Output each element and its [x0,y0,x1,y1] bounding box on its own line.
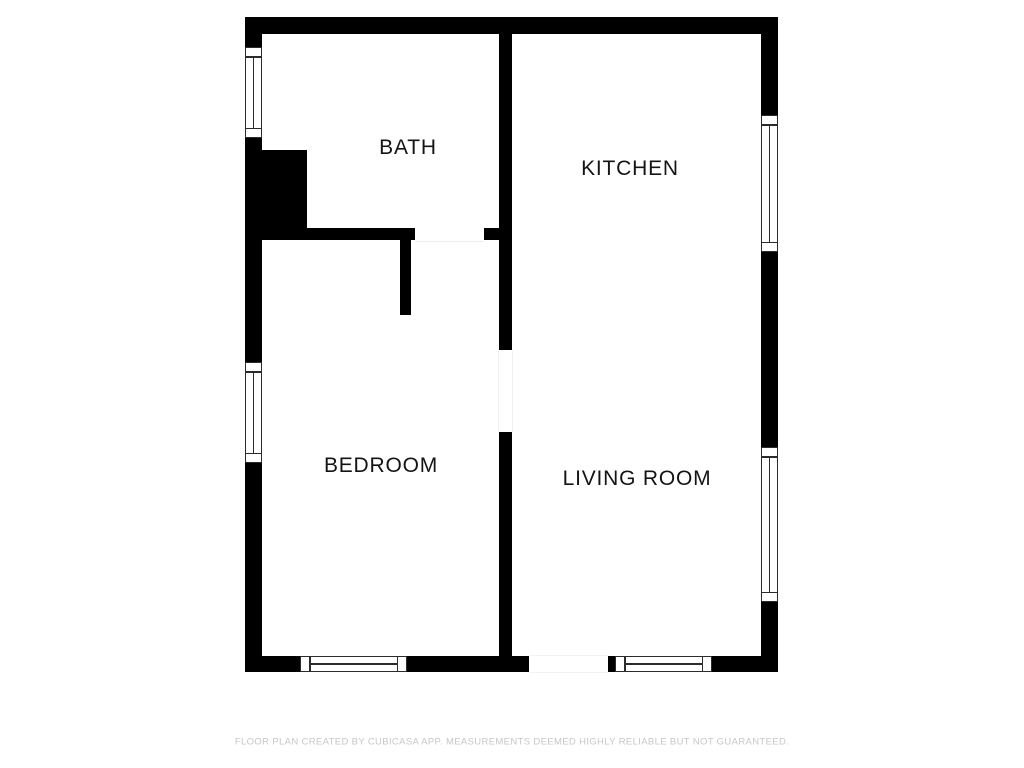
room-label-kitchen: KITCHEN [581,157,679,181]
window-bedroom-bottom [300,656,407,672]
window-living-room-bottom [615,656,712,672]
room-label-bedroom: BEDROOM [324,454,438,478]
window-kitchen-right [761,115,778,252]
window-bedroom-left [245,362,262,463]
opening-entry [529,655,608,673]
opening-hallway [498,350,513,432]
window-bath-left [245,47,262,138]
opening-bath-door [415,227,484,242]
floor-plan: BATH KITCHEN BEDROOM LIVING ROOM FLOOR P… [0,0,1024,768]
disclaimer-text: FLOOR PLAN CREATED BY CUBICASA APP. MEAS… [235,737,789,748]
room-label-bath: BATH [379,136,437,160]
wall-interior-vertical [499,30,512,656]
room-label-living-room: LIVING ROOM [563,467,712,491]
wall-stub-bedroom [400,228,411,315]
window-living-room-right [761,447,778,602]
utility-block [245,150,307,240]
